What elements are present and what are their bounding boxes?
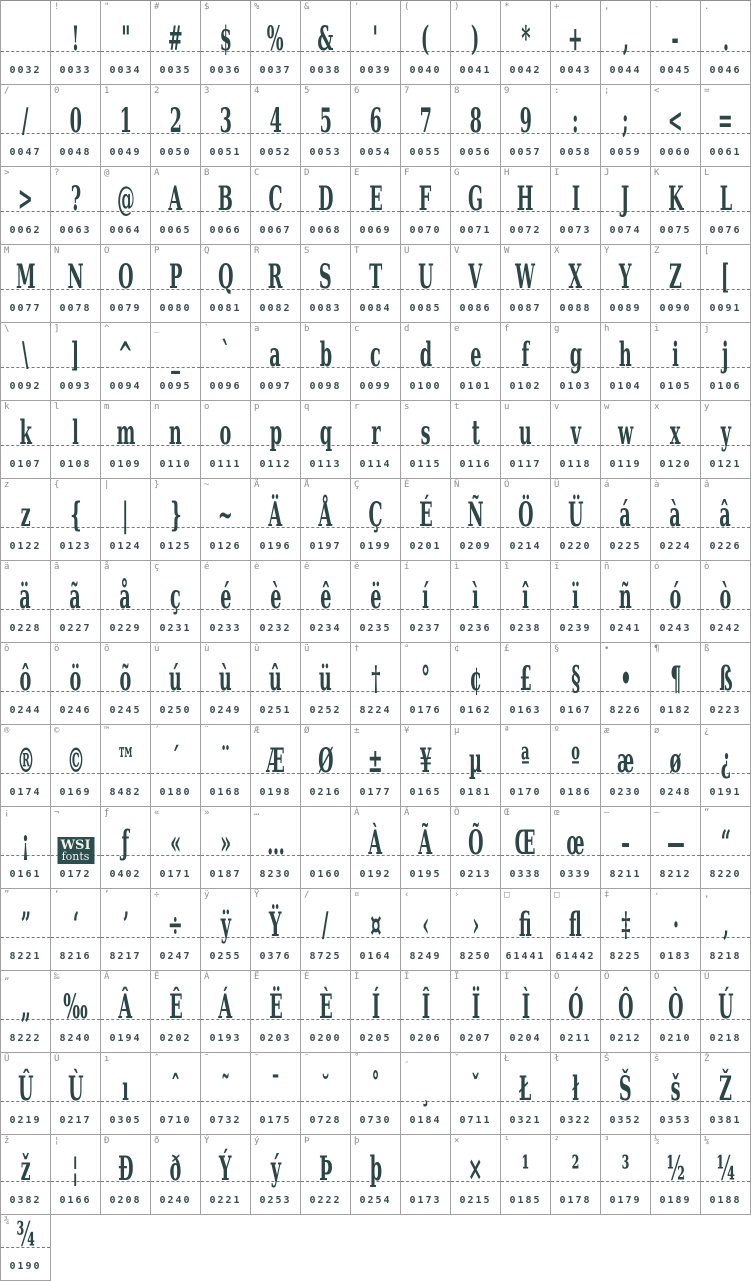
glyph-cell-0084: TT0084 (351, 245, 401, 323)
glyph-preview: Ÿ (251, 905, 300, 939)
glyph-character: š (671, 1069, 681, 1109)
wsi-fonts-logo[interactable]: WSIfonts (57, 837, 94, 864)
glyph-character: U (418, 257, 433, 297)
glyph-character: ç (170, 577, 181, 617)
cell-character-label: j (704, 324, 709, 334)
glyph-character: × (468, 1149, 483, 1189)
glyph-cell-0070: FF0070 (401, 167, 451, 245)
character-code: 0221 (201, 1195, 250, 1206)
glyph-preview: ¾ (1, 1215, 50, 1249)
cell-character-label: ù (204, 644, 209, 654)
cell-character-label: { (54, 480, 59, 490)
character-code: 0339 (551, 869, 600, 880)
glyph-cell-0032: 0032 (1, 1, 51, 85)
character-code: 8222 (1, 1033, 50, 1044)
character-code: 0730 (351, 1115, 400, 1126)
cell-character-label: □ (504, 890, 509, 900)
glyph-preview: Ì (501, 987, 550, 1021)
glyph-preview: N (51, 257, 100, 291)
glyph-preview: ” (1, 905, 50, 939)
cell-character-label: ‘ (54, 890, 59, 900)
glyph-preview: Ñ (451, 495, 500, 529)
character-code: 0073 (551, 225, 600, 236)
character-code: 0053 (301, 147, 350, 158)
character-code: 0054 (351, 147, 400, 158)
glyph-character: ° (421, 659, 430, 699)
glyph-preview: ¡ (1, 823, 50, 857)
glyph-preview: Î (401, 987, 450, 1021)
glyph-cell-0164: ¤¤0164 (351, 889, 401, 971)
glyph-preview: º (551, 741, 600, 775)
cell-character-label: ¢ (454, 644, 459, 654)
charmap-row: \\0092]]0093^^0094__0095``0096aa0097bb00… (1, 323, 751, 401)
glyph-preview: ï (551, 577, 600, 611)
character-code: 0052 (251, 147, 300, 158)
glyph-character: ‰ (63, 987, 87, 1027)
glyph-preview: § (551, 659, 600, 693)
glyph-character: Ë (269, 987, 282, 1027)
glyph-character: , (622, 19, 628, 59)
glyph-character: w (618, 413, 633, 453)
character-code: 0167 (551, 705, 600, 716)
glyph-preview: à (651, 495, 700, 529)
glyph-preview: ® (1, 741, 50, 775)
glyph-preview: / (1, 101, 50, 135)
glyph-preview: 0 (51, 101, 100, 135)
character-code: 0039 (351, 65, 400, 76)
glyph-character: ² (572, 1149, 580, 1189)
glyph-cell-0167: §§0167 (551, 643, 601, 725)
cell-character-label: É (404, 480, 409, 490)
glyph-character: í (422, 577, 429, 617)
glyph-cell-0161: ¡¡0161 (1, 807, 51, 889)
character-code: 0246 (51, 705, 100, 716)
glyph-preview: Ú (701, 987, 750, 1021)
glyph-preview: 4 (251, 101, 300, 135)
glyph-cell-0041: ))0041 (451, 1, 501, 85)
cell-character-label: ª (504, 726, 509, 736)
glyph-cell-0105: ii0105 (651, 323, 701, 401)
glyph-cell-0174: ®®0174 (1, 725, 51, 807)
character-code: 0101 (451, 381, 500, 392)
glyph-character: x (670, 413, 681, 453)
glyph-preview: ¸ (401, 1069, 450, 1103)
glyph-cell-0103: gg0103 (551, 323, 601, 401)
glyph-cell-0046: ..0046 (701, 1, 751, 85)
glyph-preview: Á (201, 987, 250, 1021)
cell-character-label: T (354, 246, 359, 256)
cell-character-label: È (304, 972, 309, 982)
glyph-character: L (719, 179, 731, 219)
character-code: 0247 (151, 951, 200, 962)
glyph-preview: X (551, 257, 600, 291)
cell-character-label: ³ (604, 1136, 609, 1146)
cell-character-label: ¡ (4, 808, 9, 818)
character-code: 0037 (251, 65, 300, 76)
cell-character-label: ÷ (154, 890, 159, 900)
cell-character-label: \ (4, 324, 9, 334)
character-code: 0251 (251, 705, 300, 716)
cell-character-label: J (604, 168, 609, 178)
glyph-character: I (571, 179, 579, 219)
cell-character-label: g (554, 324, 559, 334)
character-code: 0120 (651, 459, 700, 470)
glyph-preview: ] (51, 335, 100, 369)
cell-character-label: ˘ (304, 1054, 309, 1064)
glyph-preview: Å (301, 495, 350, 529)
cell-character-label: – (604, 808, 609, 818)
cell-character-label: ð (154, 1136, 159, 1146)
cell-character-label: ” (4, 890, 9, 900)
character-code: 0192 (351, 869, 400, 880)
glyph-preview: † (351, 659, 400, 693)
cell-character-label: z (4, 480, 9, 490)
character-code: 0097 (251, 381, 300, 392)
character-code: 0169 (51, 787, 100, 798)
cell-character-label: ú (154, 644, 159, 654)
character-code: 0126 (201, 541, 250, 552)
character-code: 8725 (301, 951, 350, 962)
glyph-character: ÷ (168, 905, 183, 945)
cell-character-label: N (54, 246, 59, 256)
glyph-cell-0208: ÐÐ0208 (101, 1135, 151, 1215)
cell-character-label: w (604, 402, 609, 412)
glyph-cell-0214: ÖÖ0214 (501, 479, 551, 561)
glyph-preview: t (451, 413, 500, 447)
character-code: 8212 (651, 869, 700, 880)
glyph-character: ‡ (621, 905, 630, 945)
glyph-cell-0088: XX0088 (551, 245, 601, 323)
cell-character-label: ¼ (704, 1136, 709, 1146)
glyph-cell-0224: àà0224 (651, 479, 701, 561)
glyph-preview: õ (101, 659, 150, 693)
cell-character-label: û (254, 644, 259, 654)
glyph-character: g (569, 335, 581, 375)
character-code: 61441 (501, 951, 550, 962)
glyph-preview: Q (201, 257, 250, 291)
glyph-character: … (267, 823, 285, 863)
cell-character-label: õ (104, 644, 109, 654)
cell-character-label: † (354, 644, 359, 654)
glyph-preview: [ (701, 257, 750, 291)
glyph-cell-8482: ™™8482 (101, 725, 151, 807)
glyph-character: õ (120, 659, 132, 699)
glyph-cell-0228: ää0228 (1, 561, 51, 643)
character-code: 0123 (51, 541, 100, 552)
glyph-preview: ¹ (501, 1149, 550, 1183)
glyph-character: Ï (471, 987, 479, 1027)
glyph-cell-0191: ¿¿0191 (701, 725, 751, 807)
character-code: 0084 (351, 303, 400, 314)
character-code: 0082 (251, 303, 300, 314)
glyph-preview: ö (51, 659, 100, 693)
glyph-preview: Ï (451, 987, 500, 1021)
glyph-preview: O (101, 257, 150, 291)
glyph-preview: ¼ (701, 1149, 750, 1183)
character-code: 0204 (501, 1033, 550, 1044)
glyph-cell-8225: ‡‡8225 (601, 889, 651, 971)
character-code: 0238 (501, 623, 550, 634)
character-code: 0193 (201, 1033, 250, 1044)
glyph-cell-0092: \\0092 (1, 323, 51, 401)
cell-character-label: s (404, 402, 409, 412)
glyph-character: ü (319, 659, 332, 699)
cell-character-label: Ò (654, 972, 659, 982)
character-code: 0160 (301, 869, 350, 880)
glyph-preview: s (401, 413, 450, 447)
glyph-cell-0242: òò0242 (701, 561, 751, 643)
glyph-character: ¦ (72, 1149, 78, 1189)
glyph-cell-0212: ÔÔ0212 (601, 971, 651, 1053)
glyph-character: ¼ (716, 1149, 734, 1189)
glyph-cell-0198: ÆÆ0198 (251, 725, 301, 807)
glyph-preview: ¥ (401, 741, 450, 775)
character-code: 0184 (401, 1115, 450, 1126)
glyph-character: ó (670, 577, 682, 617)
glyph-character: „ (20, 987, 30, 1027)
glyph-cell-0093: ]]0093 (51, 323, 101, 401)
glyph-character: i (672, 335, 679, 375)
glyph-character: ﬂ (569, 905, 582, 945)
character-code: 0175 (251, 1115, 300, 1126)
glyph-preview: Ð (101, 1149, 150, 1183)
character-code: 0066 (201, 225, 250, 236)
glyph-character: J (621, 179, 629, 219)
glyph-preview: { (51, 495, 100, 529)
glyph-character: Ñ (467, 495, 483, 535)
character-code: 8211 (601, 869, 650, 880)
glyph-character: $ (219, 19, 231, 59)
glyph-preview: í (401, 577, 450, 611)
logo-line2: fonts (57, 852, 94, 862)
cell-character-label: Â (104, 972, 109, 982)
glyph-cell-0097: aa0097 (251, 323, 301, 401)
cell-character-label: K (654, 168, 659, 178)
glyph-preview: Ø (301, 741, 350, 775)
glyph-preview: 7 (401, 101, 450, 135)
glyph-preview: Í (351, 987, 400, 1021)
glyph-cell-0241: ññ0241 (601, 561, 651, 643)
cell-character-label: + (554, 2, 559, 12)
glyph-cell-0058: ::0058 (551, 85, 601, 167)
glyph-character: § (571, 659, 580, 699)
glyph-preview: m (101, 413, 150, 447)
glyph-preview: ë (351, 577, 400, 611)
character-code: 0230 (601, 787, 650, 798)
cell-character-label: ‹ (404, 890, 409, 900)
glyph-character: ò (720, 577, 732, 617)
cell-character-label: 9 (504, 86, 509, 96)
glyph-character: F (419, 179, 432, 219)
glyph-character: ê (320, 577, 331, 617)
character-code: 0083 (301, 303, 350, 314)
glyph-cell-0033: !!0033 (51, 1, 101, 85)
glyph-character: n (169, 413, 182, 453)
glyph-cell-0095: __0095 (151, 323, 201, 401)
glyph-preview: y (701, 413, 750, 447)
glyph-cell-0172: ¬WSIfonts0172 (51, 807, 101, 889)
glyph-character: ‹ (422, 905, 429, 945)
cell-character-label: å (104, 562, 109, 572)
glyph-character: º (571, 741, 580, 781)
glyph-character: © (67, 741, 85, 781)
glyph-character: . (722, 19, 728, 59)
cell-character-label: u (504, 402, 509, 412)
character-code: 0199 (351, 541, 400, 552)
glyph-cell-0732: ˜˜0732 (201, 1053, 251, 1135)
cell-character-label: … (254, 808, 259, 818)
glyph-character: T (369, 257, 382, 297)
cell-character-label: | (104, 480, 109, 490)
cell-character-label: C (254, 168, 259, 178)
glyph-preview: É (401, 495, 450, 529)
glyph-cell-0087: WW0087 (501, 245, 551, 323)
glyph-character: • (620, 659, 631, 699)
cell-character-label: ¯ (254, 1054, 259, 1064)
glyph-cell-0402: ƒƒ0402 (101, 807, 151, 889)
glyph-preview: Ł (501, 1069, 550, 1103)
character-code: 0338 (501, 869, 550, 880)
character-code: 0042 (501, 65, 550, 76)
cell-character-label: Ñ (454, 480, 459, 490)
character-code: 0232 (251, 623, 300, 634)
glyph-preview: ˘ (301, 1069, 350, 1103)
glyph-character: ´ (171, 741, 180, 781)
cell-character-label: 7 (404, 86, 409, 96)
glyph-character: W (516, 257, 536, 297)
glyph-preview: l (51, 413, 100, 447)
character-code: 0105 (651, 381, 700, 392)
character-code: 0711 (451, 1115, 500, 1126)
glyph-cell-0111: oo0111 (201, 401, 251, 479)
glyph-cell-0110: nn0110 (151, 401, 201, 479)
glyph-cell-0168: ¨¨0168 (201, 725, 251, 807)
character-code: 0353 (651, 1115, 700, 1126)
glyph-preview: ¢ (451, 659, 500, 693)
glyph-character: _ (171, 335, 180, 375)
glyph-preview: ú (151, 659, 200, 693)
character-code: 0171 (151, 869, 200, 880)
glyph-cell-0102: ff0102 (501, 323, 551, 401)
character-code: 0033 (51, 65, 100, 76)
cell-character-label: ƒ (104, 808, 109, 818)
glyph-character: [ (721, 257, 729, 297)
character-code: 0114 (351, 459, 400, 470)
glyph-preview: × (451, 1149, 500, 1183)
glyph-preview: ˆ (151, 1069, 200, 1103)
glyph-character: þ (369, 1149, 381, 1189)
glyph-cell-0055: 770055 (401, 85, 451, 167)
cell-character-label: Ø (304, 726, 309, 736)
glyph-preview: ý (251, 1149, 300, 1183)
charmap-row: ®®0174©©0169™™8482´´0180¨¨0168ÆÆ0198ØØ02… (1, 725, 751, 807)
cell-character-label: 0 (54, 86, 59, 96)
glyph-character: ƒ (122, 823, 130, 863)
glyph-character: ý (270, 1149, 280, 1189)
glyph-cell-0711: ˇˇ0711 (451, 1053, 501, 1135)
character-code: 0213 (451, 869, 500, 880)
glyph-preview: ’ (101, 905, 150, 939)
glyph-cell-0710: ˆˆ0710 (151, 1053, 201, 1135)
glyph-cell-0083: SS0083 (301, 245, 351, 323)
cell-character-label: ~ (204, 480, 209, 490)
character-code: 0244 (1, 705, 50, 716)
glyph-character: ˚ (371, 1069, 380, 1109)
glyph-preview: Ö (501, 495, 550, 529)
glyph-cell-0190: ¾¾0190 (1, 1215, 51, 1281)
character-code: 8482 (101, 787, 150, 798)
character-code: 0048 (51, 147, 100, 158)
glyph-character: @ (117, 179, 135, 219)
glyph-cell-0217: ÙÙ0217 (51, 1053, 101, 1135)
glyph-character: c (370, 335, 381, 375)
glyph-cell-0076: LL0076 (701, 167, 751, 245)
glyph-cell-0069: EE0069 (351, 167, 401, 245)
glyph-character: Ú (718, 987, 733, 1027)
glyph-cell-0107: kk0107 (1, 401, 51, 479)
glyph-character: ± (368, 741, 383, 781)
glyph-cell-0065: AA0065 (151, 167, 201, 245)
cell-character-label: é (204, 562, 209, 572)
cell-character-label: ã (54, 562, 59, 572)
cell-character-label: % (254, 2, 259, 12)
glyph-preview: < (651, 101, 700, 135)
glyph-character: < (668, 101, 683, 141)
cell-character-label: ˆ (154, 1054, 159, 1064)
character-code: 0034 (101, 65, 150, 76)
glyph-preview: ˇ (451, 1069, 500, 1103)
cell-character-label: e (454, 324, 459, 334)
glyph-cell-8217: ’’8217 (101, 889, 151, 971)
glyph-character: b (319, 335, 331, 375)
glyph-character: ¸ (421, 1069, 430, 1109)
glyph-preview: Æ (251, 741, 300, 775)
cell-character-label: š (654, 1054, 659, 1064)
cell-character-label: ˜ (204, 1054, 209, 1064)
cell-character-label: P (154, 246, 159, 256)
glyph-cell-0730: ˚˚0730 (351, 1053, 401, 1135)
glyph-preview: + (551, 19, 600, 53)
cell-character-label: ∕ (304, 890, 309, 900)
character-code: 0045 (651, 65, 700, 76)
character-code: 0057 (501, 147, 550, 158)
cell-character-label: 2 (154, 86, 159, 96)
glyph-preview: ß (701, 659, 750, 693)
glyph-preview: F (401, 179, 450, 213)
glyph-character: ~ (218, 495, 233, 535)
glyph-preview: “ (701, 823, 750, 857)
character-code: 0183 (651, 951, 700, 962)
glyph-character: Ô (618, 987, 633, 1027)
cell-character-label: ¹ (504, 1136, 509, 1146)
glyph-preview: D (301, 179, 350, 213)
glyph-preview: Z (651, 257, 700, 291)
character-code: 0242 (701, 623, 750, 634)
glyph-cell-0247: ÷÷0247 (151, 889, 201, 971)
glyph-character: Ä (269, 495, 283, 535)
glyph-character: È (319, 987, 332, 1027)
glyph-preview: — (651, 823, 700, 857)
glyph-cell-0185: ¹¹0185 (501, 1135, 551, 1215)
glyph-cell-0062: >>0062 (1, 167, 51, 245)
glyph-character: ¡ (22, 823, 30, 863)
glyph-cell-0248: øø0248 (651, 725, 701, 807)
glyph-character: À (369, 823, 383, 863)
glyph-preview: @ (101, 179, 150, 213)
glyph-character: Y (619, 257, 632, 297)
character-code: 0236 (451, 623, 500, 634)
cell-character-label: ± (354, 726, 359, 736)
